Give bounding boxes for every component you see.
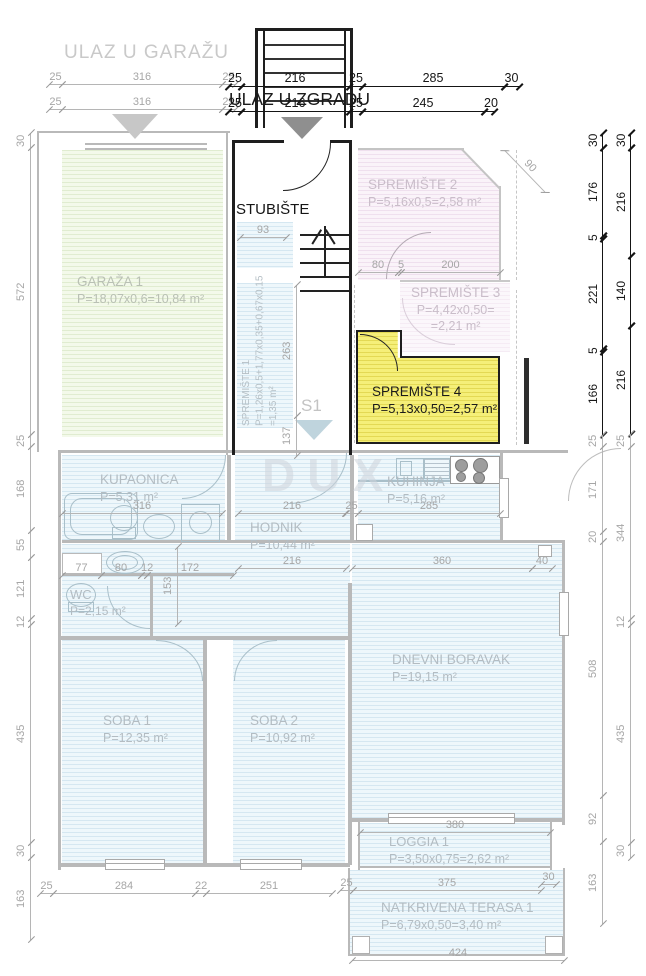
room-area: P=5,31 m² [100, 489, 179, 505]
dim-segment: 435 [630, 625, 631, 843]
staircase-label: STUBIŠTE [236, 201, 309, 218]
wall-spremiste4 [356, 442, 500, 444]
door-arc-stair-entry [283, 143, 331, 191]
wall [563, 868, 565, 956]
dim-segment: 375 [353, 890, 541, 891]
dim-segment: 200 [401, 272, 500, 273]
dim-segment: 284 [53, 893, 195, 894]
dashed-line [516, 150, 517, 280]
dim-segment: 163 [602, 842, 603, 924]
stove-burner [456, 472, 466, 482]
dim-segment: 171 [602, 447, 603, 532]
wall-spremiste4 [356, 330, 402, 332]
dim-segment: 153 [177, 547, 178, 624]
dim-segment: 121 [30, 558, 31, 619]
wall [500, 540, 565, 543]
washing-machine-drum [189, 511, 212, 534]
dim-segment: 508 [602, 542, 603, 796]
wall [226, 131, 228, 455]
room-name: GARAŽA 1 [77, 274, 143, 289]
watermark: DUX [262, 448, 395, 502]
room-area: P=19,15 m² [392, 669, 510, 685]
wall [348, 583, 352, 865]
dim-segment: 216 [241, 111, 349, 112]
room-area: P=1,26x0,5+1,77x0,35+0,67x0,15 [254, 286, 268, 426]
room-name: SPREMIŠTE 2 [368, 177, 457, 192]
garage-entrance-label: ULAZ U GARAŽU [64, 42, 229, 64]
garage-door-line [85, 148, 207, 150]
dim-segment: 168 [30, 447, 31, 531]
wall-thin [400, 280, 510, 282]
wall [203, 640, 207, 865]
stove-burner [455, 459, 468, 472]
wall [150, 575, 153, 638]
room-name: SPREMIŠTE 4 [372, 384, 461, 399]
room-fill-dnevni [352, 585, 565, 820]
dim-segment: 344 [630, 447, 631, 619]
garage-door-line [85, 143, 207, 145]
stove-burner [473, 458, 488, 473]
room-name: KUHINJA [387, 474, 445, 489]
stair-tread [265, 58, 344, 60]
dim-segment: 216 [630, 326, 631, 434]
dim-segment: 172 [147, 575, 233, 576]
dim-segment: 216 [630, 148, 631, 256]
dim-segment: 263 [296, 285, 297, 416]
dim-segment: 216 [238, 513, 346, 514]
dim-segment: 80 [358, 272, 398, 273]
dim-segment: 316 [62, 109, 222, 110]
building-entrance-label: ULAZ U ZGRADU [229, 89, 370, 110]
room-area: P=5,13x0,50=2,57 m² [372, 401, 497, 418]
section-bar [524, 358, 529, 444]
window [559, 592, 569, 636]
dim-segment: 424 [352, 960, 564, 961]
room-area: P=10,92 m² [250, 730, 315, 746]
dim-segment: 221 [602, 239, 603, 349]
room-name: SPREMIŠTE 1 [240, 286, 254, 426]
dim-segment: 216 [241, 86, 349, 87]
dim-segment: 285 [362, 86, 504, 87]
room-name: SOBA 1 [103, 713, 151, 728]
dim-segment: 30 [541, 884, 556, 885]
dim-segment: 40 [532, 568, 552, 569]
toilet-tank [112, 527, 136, 539]
dim-segment: 360 [352, 568, 532, 569]
room-area: P=4,42x0,50= [411, 302, 500, 318]
dim-segment: 216 [238, 568, 346, 569]
window-line [389, 817, 514, 818]
dim-segment: 245 [362, 111, 484, 112]
dim-segment: 316 [62, 84, 222, 85]
dim-segment: 20 [484, 111, 494, 112]
dim-segment: 163 [30, 858, 31, 940]
dashed-line [516, 290, 517, 445]
dim-segment: 251 [206, 893, 332, 894]
wall [550, 821, 552, 870]
room-area: P=3,50x0,75=2,62 m² [389, 851, 509, 867]
room-label-spremiste4: SPREMIŠTE 4 P=5,13x0,50=2,57 m² [372, 383, 497, 417]
room-label-loggia: LOGGIA 1 P=3,50x0,75=2,62 m² [389, 834, 509, 867]
wall-thin [358, 148, 464, 150]
room-label-spremiste2: SPREMIŠTE 2 P=5,16x0,5=2,58 m² [368, 176, 481, 210]
dim-segment: 30 [504, 86, 519, 87]
window-line [241, 863, 301, 864]
dim-segment: 316 [62, 513, 222, 514]
dim-segment: 80 [101, 575, 141, 576]
wall [562, 540, 565, 825]
dim-segment: 166 [602, 352, 603, 435]
room-area: =1,35 m² [267, 286, 281, 426]
room-area: P=12,35 m² [103, 730, 168, 746]
dim-segment: 380 [360, 832, 550, 833]
dim-segment: 137 [296, 416, 297, 456]
stair-top [255, 28, 353, 31]
wall-spremiste4 [400, 332, 402, 358]
garage-entrance-arrow [112, 114, 158, 139]
room-label-hodnik: HODNIK P=10,44 m² [250, 519, 315, 553]
room-label-spremiste3: SPREMIŠTE 3 P=4,42x0,50= =2,21 m² [411, 284, 500, 334]
room-name: WC [70, 587, 92, 602]
dim-segment: 30 [630, 843, 631, 858]
room-area: P=18,07x0,6=10,84 m² [77, 291, 204, 307]
stair-arrow [325, 229, 335, 244]
wall-spremiste4 [356, 330, 358, 444]
window [105, 859, 165, 870]
dim-segment: 176 [602, 148, 603, 236]
floor-plan: DUX 25 316 25 25 316 25 25 216 25 285 30… [0, 0, 646, 976]
room-area: =2,21 m² [411, 318, 500, 334]
stair-center-line [324, 226, 326, 278]
dashed-line [354, 285, 355, 443]
stair-arrow [311, 229, 321, 244]
room-name: LOGGIA 1 [389, 834, 449, 849]
room-label-dnevni: DNEVNI BORAVAK P=19,15 m² [392, 651, 510, 685]
building-entrance-arrow [281, 117, 323, 139]
room-area: P=6,79x0,50=3,40 m² [381, 917, 534, 933]
room-label-wc: WC P=2,15 m² [70, 587, 126, 619]
window [240, 859, 302, 870]
stair-tread [300, 290, 349, 292]
stove-burner [473, 472, 485, 484]
section-marker-label: S1 [301, 396, 322, 416]
wall-spremiste4 [400, 356, 500, 358]
dim-segment: 285 [358, 513, 500, 514]
room-name: DNEVNI BORAVAK [392, 652, 510, 667]
wall-stair [232, 140, 284, 143]
pillar [356, 524, 373, 541]
wall-stair [232, 140, 235, 455]
section-marker-triangle [295, 420, 333, 440]
stair-tread [265, 44, 344, 46]
room-label-terasa: NATKRIVENA TERASA 1 P=6,79x0,50=3,40 m² [381, 899, 534, 933]
room-label-kupaonica: KUPAONICA P=5,31 m² [100, 471, 179, 505]
dim-segment-diagonal: 90 [504, 150, 545, 192]
bidet [143, 514, 175, 539]
dim-segment: 55 [30, 531, 31, 558]
room-area: P=5,16x0,5=2,58 m² [368, 194, 481, 210]
room-name: NATKRIVENA TERASA 1 [381, 900, 534, 915]
room-label-spremiste1: SPREMIŠTE 1 P=1,26x0,5+1,77x0,35+0,67x0,… [240, 286, 281, 426]
dim-segment: 93 [240, 237, 286, 238]
dim-segment: 572 [30, 148, 31, 435]
dim-segment: 140 [630, 256, 631, 326]
room-name: HODNIK [250, 520, 303, 535]
room-name: SOBA 2 [250, 713, 298, 728]
room-label-kuhinja: KUHINJA P=5,16 m² [387, 473, 445, 507]
window-line [106, 863, 164, 864]
dim-segment: 77 [62, 575, 101, 576]
room-label-soba2: SOBA 2 P=10,92 m² [250, 712, 315, 746]
room-label-soba1: SOBA 1 P=12,35 m² [103, 712, 168, 746]
wall [37, 131, 39, 452]
room-area: P=10,44 m² [250, 537, 315, 553]
room-name: KUPAONICA [100, 472, 179, 487]
dim-segment: 435 [30, 625, 31, 843]
room-name: SPREMIŠTE 3 [411, 285, 500, 300]
room-area: P=2,15 m² [70, 604, 126, 620]
dim-segment: 92 [602, 796, 603, 842]
wall-stair [349, 140, 352, 455]
room-label-garaza: GARAŽA 1 P=18,07x0,6=10,84 m² [77, 273, 204, 307]
wall [227, 455, 231, 542]
room-area: P=5,16 m² [387, 491, 445, 507]
wall-spremiste4 [498, 358, 500, 444]
